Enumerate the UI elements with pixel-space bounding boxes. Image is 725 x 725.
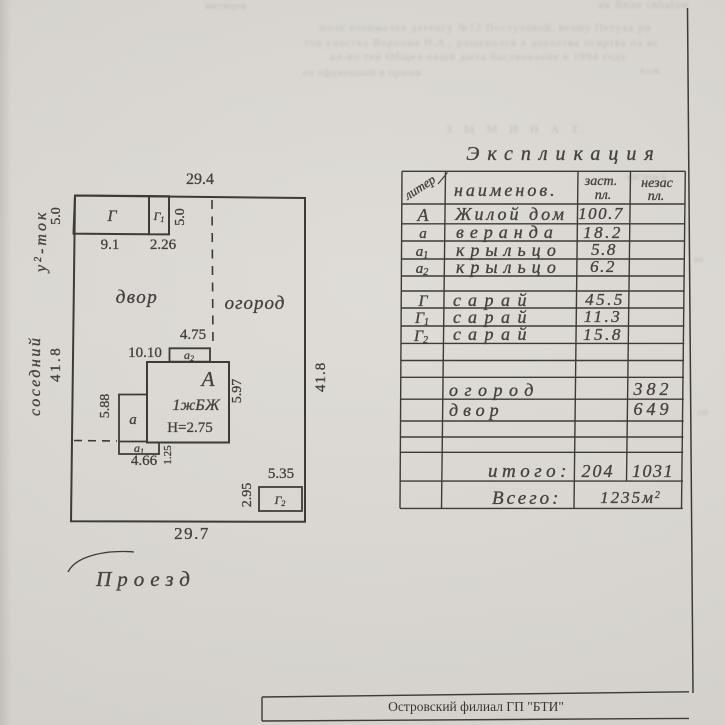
svg-text:итого:: итого:: [488, 461, 571, 482]
svg-text:вож: вож: [640, 65, 661, 77]
svg-text:11.3: 11.3: [584, 307, 623, 326]
svg-text:двор: двор: [116, 287, 159, 308]
svg-text:тов унастка Воронне Н.А., раще: тов унастка Воронне Н.А., ращеннлся в до…: [304, 37, 659, 49]
svg-text:1.25: 1.25: [162, 445, 174, 465]
svg-text:Н=2.75: Н=2.75: [167, 420, 213, 436]
svg-text:382: 382: [633, 379, 673, 399]
svg-text:ам: ам: [697, 407, 708, 418]
svg-text:а: а: [129, 412, 137, 428]
svg-text:заст.: заст.: [584, 174, 617, 189]
svg-text:Проезд: Проезд: [95, 567, 196, 591]
svg-text:10.10: 10.10: [128, 345, 162, 361]
svg-text:5.35: 5.35: [268, 466, 294, 482]
svg-text:Г1: Г1: [153, 209, 165, 224]
svg-text:649: 649: [634, 399, 673, 419]
svg-text:Г: Г: [106, 208, 117, 225]
svg-text:оз офдченшнй в прюня: оз офдченшнй в прюня: [303, 67, 421, 79]
svg-text:месяцев: месяцев: [205, 0, 247, 12]
svg-text:соседний: соседний: [27, 336, 44, 416]
svg-text:4.75: 4.75: [180, 327, 206, 343]
svg-text:Г2: Г2: [274, 493, 286, 508]
svg-text:А: А: [200, 367, 215, 391]
svg-text:а2: а2: [416, 261, 429, 278]
svg-text:веранда: веранда: [456, 222, 559, 242]
svg-text:2.26: 2.26: [150, 237, 177, 253]
svg-text:литер: литер: [401, 171, 439, 203]
svg-text:Г: Г: [417, 293, 428, 310]
svg-text:ал-во тей Общел овшй дыта басл: ал-во тей Общел овшй дыта баслвованне в …: [330, 51, 627, 63]
svg-text:сарай: сарай: [453, 324, 534, 344]
svg-text:1235м2: 1235м2: [600, 488, 662, 507]
svg-text:Г1: Г1: [414, 310, 429, 328]
svg-text:100.7: 100.7: [578, 204, 624, 223]
svg-text:а: а: [419, 226, 427, 242]
svg-text:29.7: 29.7: [174, 524, 210, 543]
svg-text:5.0: 5.0: [173, 208, 188, 226]
svg-text:1031: 1031: [632, 461, 674, 481]
svg-text:пл.: пл.: [648, 189, 665, 204]
svg-text:наименов.: наименов.: [454, 180, 558, 200]
svg-text:15.8: 15.8: [583, 325, 623, 344]
svg-text:29.4: 29.4: [186, 171, 214, 188]
svg-text:4.66: 4.66: [131, 453, 158, 469]
svg-text:6.2: 6.2: [590, 257, 616, 276]
svg-text:пл.: пл.: [595, 188, 612, 203]
svg-text:204: 204: [582, 461, 615, 481]
svg-text:ва: ва: [694, 254, 704, 265]
svg-text:Г2: Г2: [413, 328, 428, 346]
svg-text:ноле отонмалев датенгу №12 Пос: ноле отонмалев датенгу №12 Постуловой, в…: [320, 22, 651, 34]
svg-text:огород: огород: [449, 380, 540, 400]
svg-text:5.0: 5.0: [49, 207, 64, 225]
svg-text:5.97: 5.97: [230, 379, 245, 404]
svg-text:41.8: 41.8: [48, 346, 64, 382]
svg-text:41.8: 41.8: [313, 362, 329, 392]
svg-text:9.1: 9.1: [101, 237, 120, 253]
svg-text:Жилой дом: Жилой дом: [454, 204, 567, 224]
svg-text:Экспликация: Экспликация: [466, 143, 661, 165]
svg-text:2.95: 2.95: [240, 483, 255, 508]
svg-text:двор: двор: [449, 400, 504, 420]
svg-text:А: А: [417, 205, 430, 225]
svg-text:Всего:: Всего:: [492, 488, 561, 509]
svg-text:1жБЖ: 1жБЖ: [172, 397, 221, 414]
svg-text:огород: огород: [225, 293, 286, 314]
svg-text:нк Велн свbalом: нк Велн свbalом: [598, 0, 689, 11]
svg-text:Островский филиал ГП "БТИ": Островский филиал ГП "БТИ": [388, 699, 564, 714]
svg-text:а2: а2: [184, 348, 194, 363]
svg-text:5.88: 5.88: [98, 394, 113, 419]
svg-text:а1: а1: [416, 244, 429, 261]
svg-text:у2-ток: у2-ток: [33, 210, 50, 274]
svg-text:крыльцо: крыльцо: [456, 257, 562, 277]
svg-text:З Ы М И Н А Т.: З Ы М И Н А Т.: [446, 122, 589, 136]
